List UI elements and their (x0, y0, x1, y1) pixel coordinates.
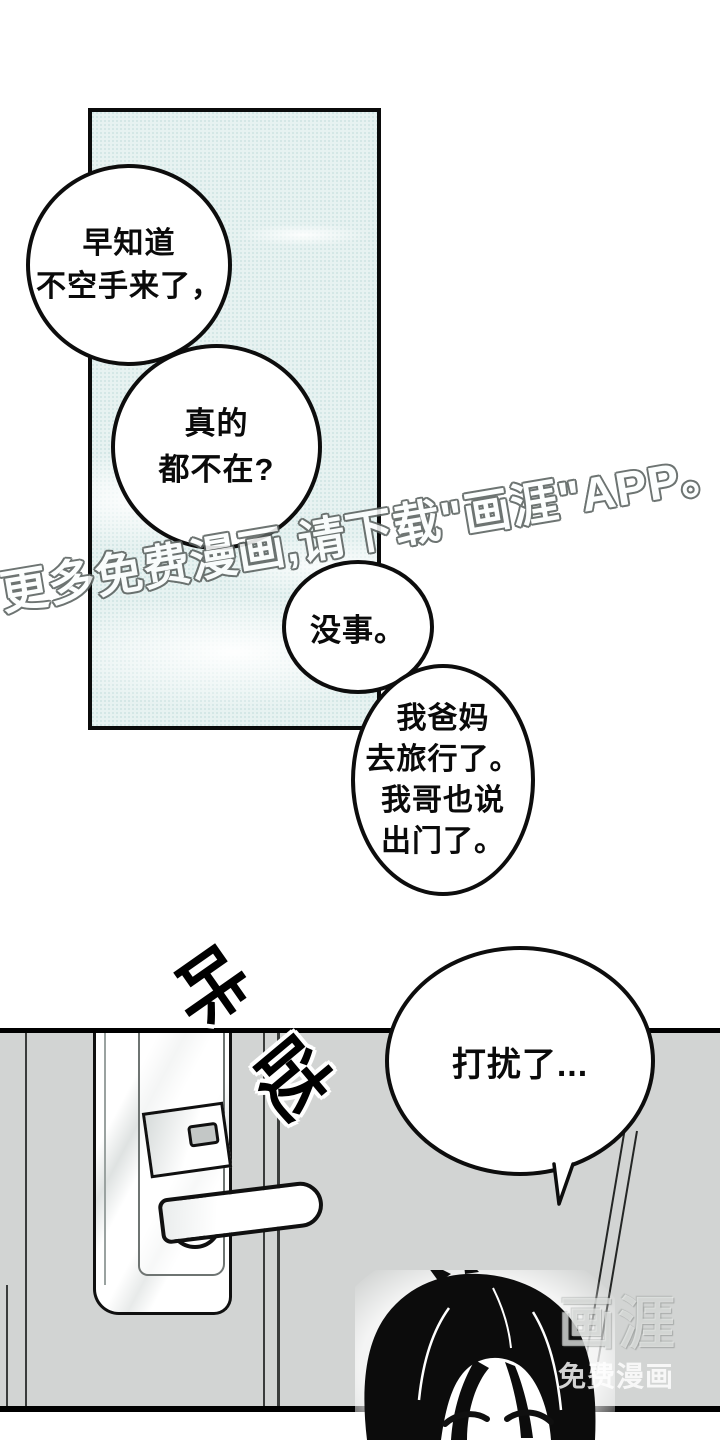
bubble-line: 我爸妈 (397, 698, 490, 739)
bubble-line: 真的 (185, 401, 249, 447)
speech-bubble-4: 我爸妈 去旅行了。 我哥也说 出门了。 (351, 664, 535, 896)
door-edge-line (6, 1285, 8, 1406)
bubble-line: 去旅行了。 (366, 739, 521, 780)
bubble-line: 早知道 (83, 222, 176, 265)
lock-window (142, 1102, 232, 1179)
speech-bubble-1: 早知道 不空手来了， (26, 164, 232, 366)
bubble-line: 都不在? (159, 447, 275, 493)
watermark-logo: 画涯 免费漫画 (558, 1296, 708, 1391)
door-edge-line (25, 1033, 27, 1406)
lock-side-edge (104, 1033, 106, 1285)
watermark-logo-title: 画涯 (558, 1296, 708, 1353)
comic-page: 早知道 不空手来了， 真的 都不在? 没事。 我爸妈 去旅行了。 我哥也说 出门… (0, 0, 720, 1440)
bubble-line: 出门了。 (381, 821, 505, 862)
bubble-line: 不空手来了， (36, 265, 222, 308)
speech-bubble-5: 打扰了... (385, 946, 655, 1176)
bubble-tail (546, 1162, 582, 1208)
door-lock (93, 1033, 232, 1315)
watermark-logo-subtitle: 免费漫画 (558, 1363, 708, 1391)
lock-button (187, 1122, 220, 1148)
bubble-line: 我哥也说 (381, 780, 505, 821)
bubble-line: 没事。 (310, 605, 406, 650)
bubble-line: 打扰了... (452, 1037, 588, 1086)
sfx-click-1: 咔 (156, 936, 259, 1039)
